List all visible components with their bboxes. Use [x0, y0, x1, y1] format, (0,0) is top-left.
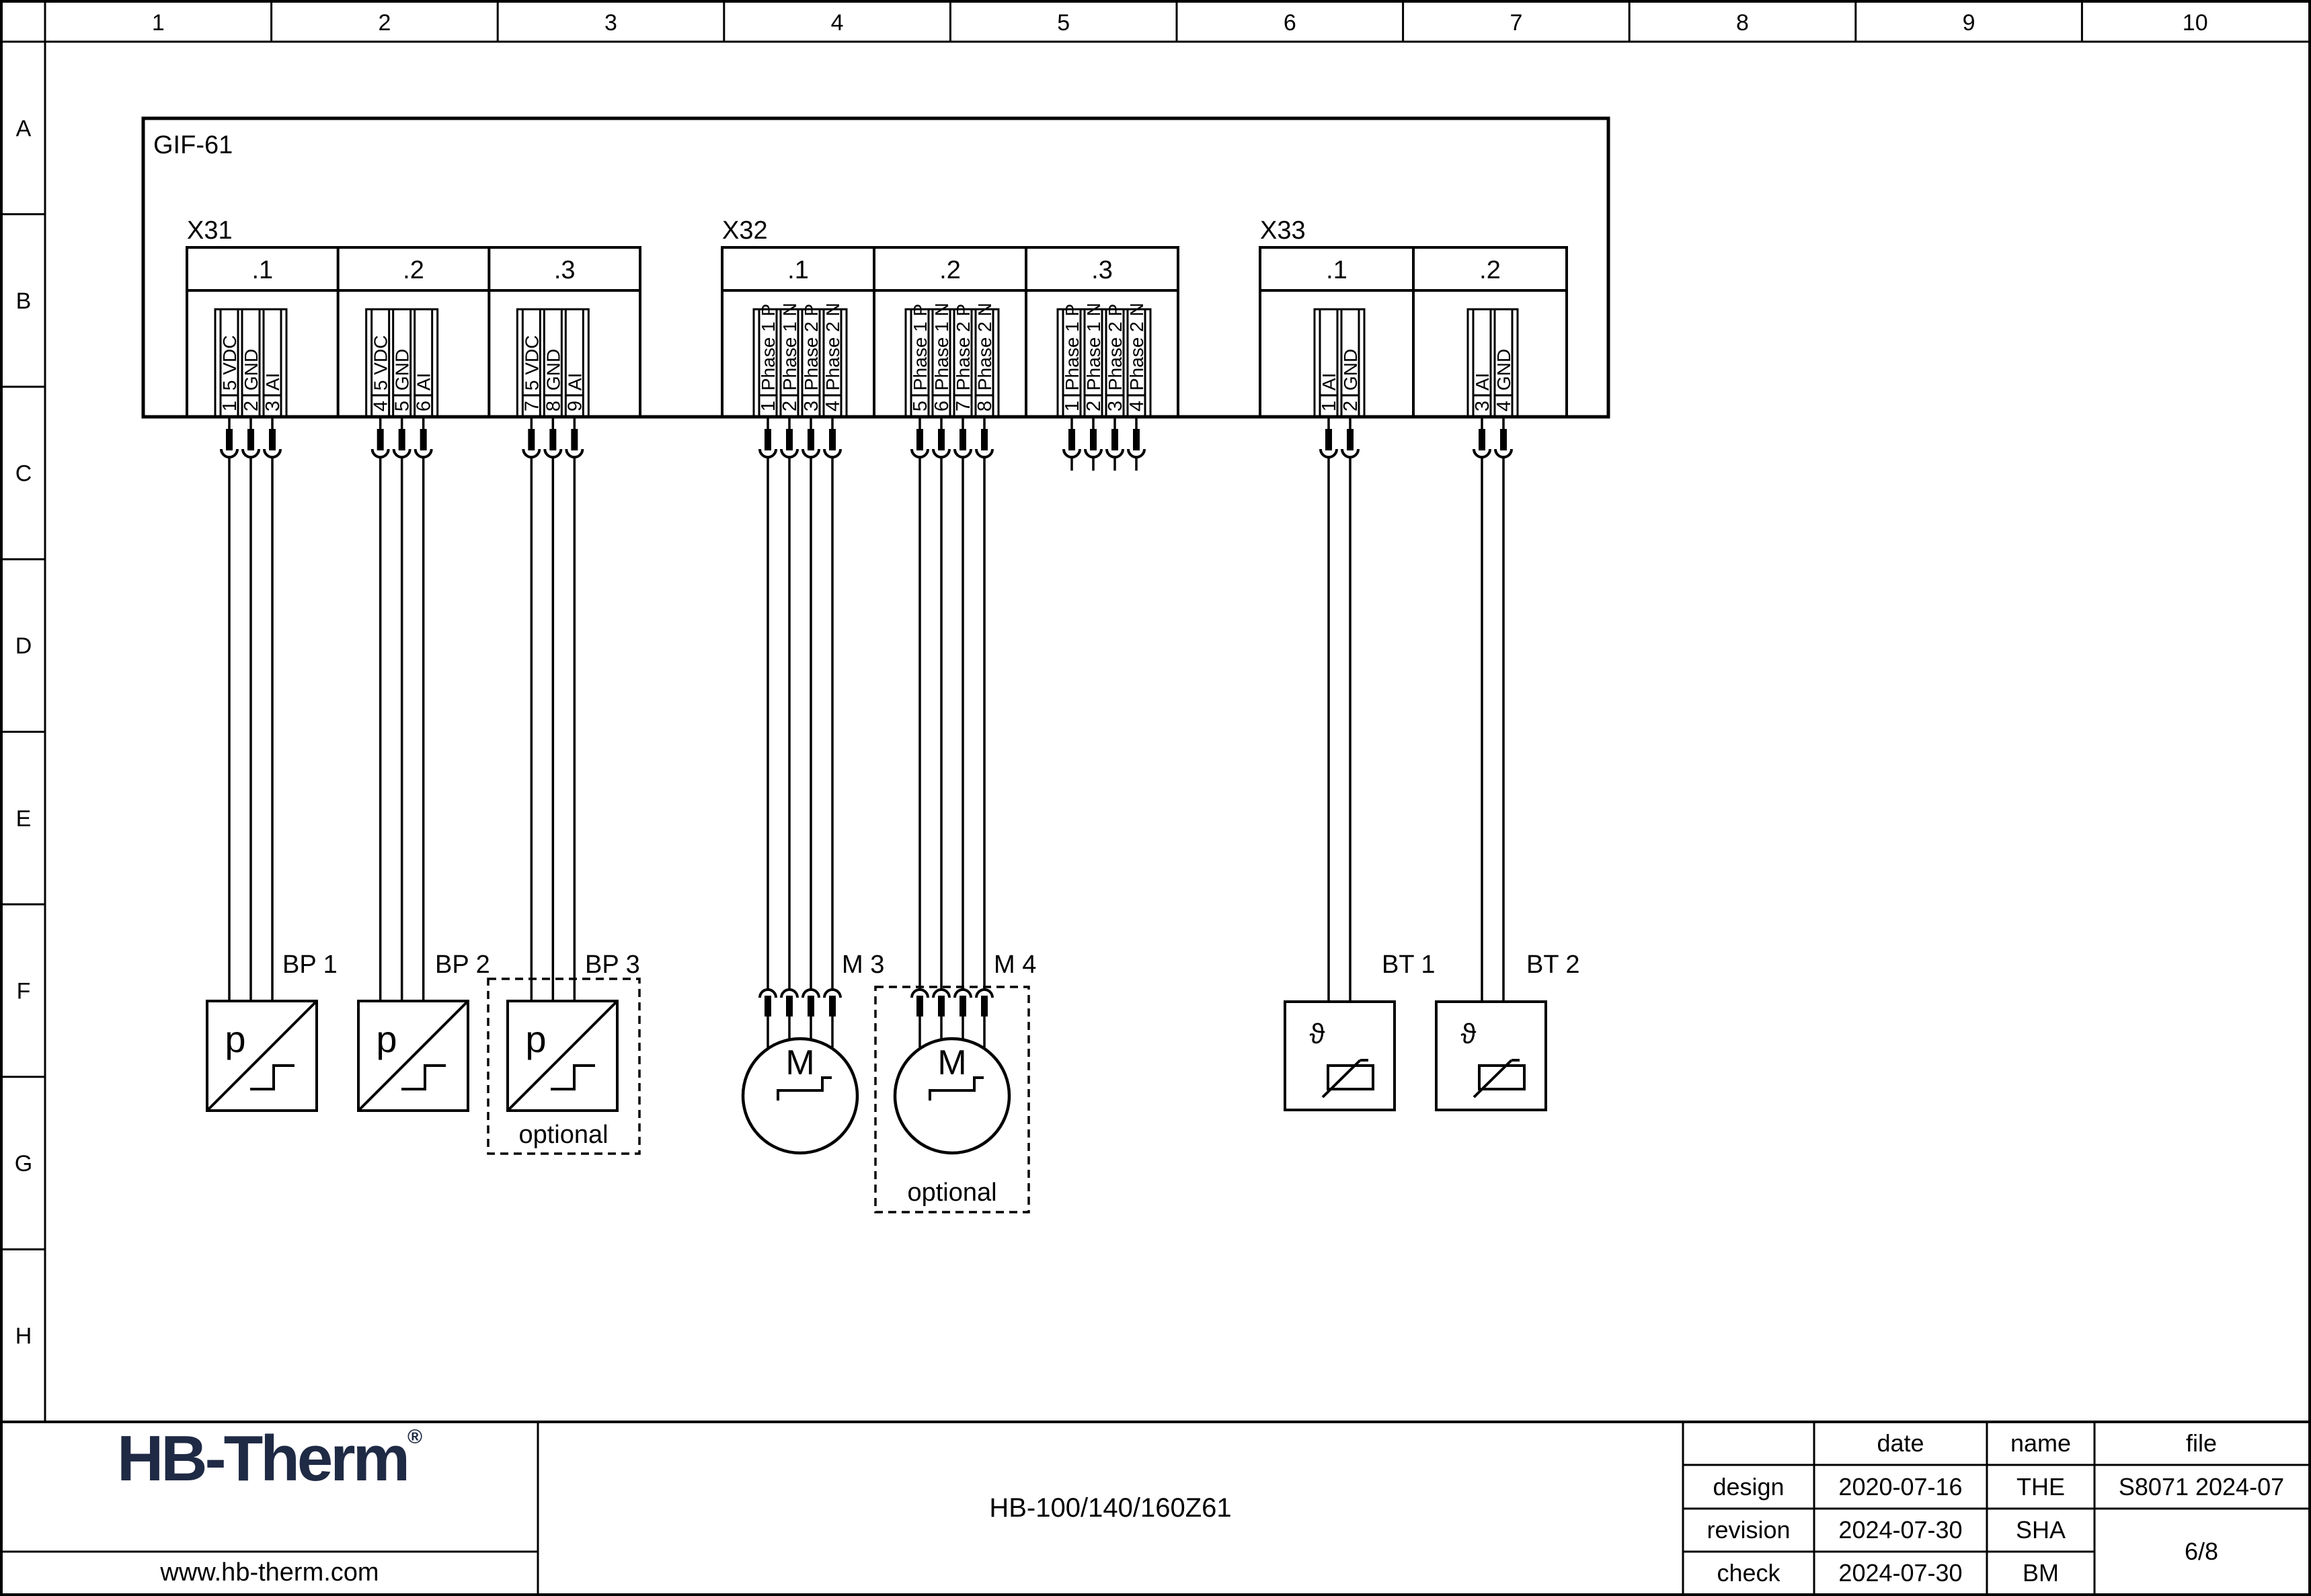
design-row-label: design: [1683, 1465, 1814, 1509]
text-layer: HB-Therm® www.hb-therm.com HB-100/140/16…: [0, 0, 2311, 1596]
logo-text: HB-Therm: [117, 1422, 407, 1496]
design-name: THE: [1987, 1465, 2094, 1509]
website-link: www.hb-therm.com: [1, 1552, 538, 1594]
table-header-file: file: [2094, 1422, 2308, 1465]
revision-name: SHA: [1987, 1509, 2094, 1552]
schematic-sheet: 12345678910ABCDEFGHGIF-61X31.15 VDC1GND2…: [0, 0, 2311, 1596]
revision-date: 2024-07-30: [1814, 1509, 1987, 1552]
file-value: S8071 2024-07: [2094, 1465, 2308, 1509]
check-date: 2024-07-30: [1814, 1552, 1987, 1594]
check-row-label: check: [1683, 1552, 1814, 1594]
document-title: HB-100/140/160Z61: [538, 1422, 1683, 1594]
page-number: 6/8: [2094, 1509, 2308, 1594]
registered-mark-icon: ®: [407, 1426, 422, 1449]
table-header-date: date: [1814, 1422, 1987, 1465]
check-name: BM: [1987, 1552, 2094, 1594]
hb-therm-logo: HB-Therm®: [1, 1422, 538, 1552]
design-date: 2020-07-16: [1814, 1465, 1987, 1509]
table-header-name: name: [1987, 1422, 2094, 1465]
revision-row-label: revision: [1683, 1509, 1814, 1552]
